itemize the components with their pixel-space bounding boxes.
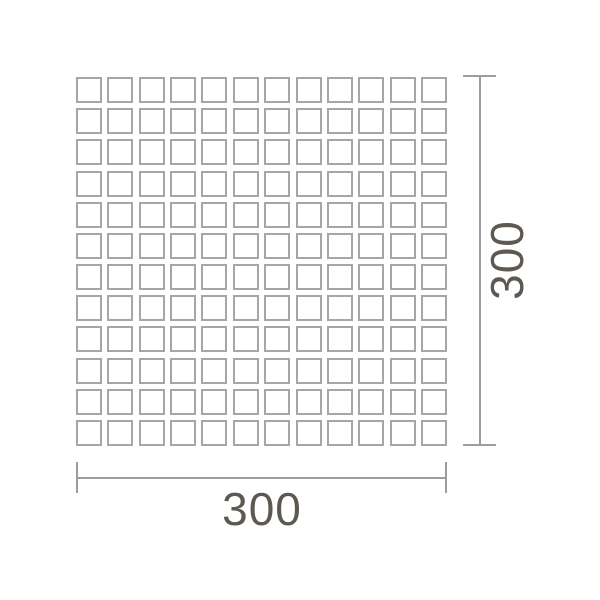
mosaic-tile bbox=[327, 77, 353, 103]
mosaic-tile bbox=[390, 108, 416, 134]
mosaic-tile bbox=[201, 77, 227, 103]
mosaic-tile bbox=[358, 358, 384, 384]
mosaic-tile bbox=[296, 171, 322, 197]
mosaic-tile bbox=[170, 264, 196, 290]
mosaic-tile bbox=[233, 139, 259, 165]
tile-sheet-drawing: 300 300 bbox=[0, 0, 600, 600]
mosaic-tile bbox=[201, 358, 227, 384]
mosaic-tile bbox=[76, 171, 102, 197]
mosaic-tile bbox=[390, 171, 416, 197]
mosaic-tile bbox=[107, 358, 133, 384]
mosaic-tile bbox=[264, 77, 290, 103]
height-dimension-tick-top bbox=[463, 75, 496, 77]
height-dimension-label: 300 bbox=[482, 200, 532, 320]
mosaic-tile bbox=[264, 171, 290, 197]
mosaic-tile bbox=[76, 358, 102, 384]
mosaic-tile bbox=[139, 233, 165, 259]
mosaic-tile bbox=[76, 77, 102, 103]
mosaic-tile bbox=[233, 264, 259, 290]
mosaic-tile bbox=[264, 358, 290, 384]
mosaic-tile bbox=[107, 326, 133, 352]
mosaic-tile-grid bbox=[76, 77, 447, 446]
mosaic-tile bbox=[421, 358, 447, 384]
mosaic-tile bbox=[390, 139, 416, 165]
mosaic-tile bbox=[233, 108, 259, 134]
mosaic-tile bbox=[107, 108, 133, 134]
mosaic-tile bbox=[390, 389, 416, 415]
mosaic-tile bbox=[327, 108, 353, 134]
mosaic-tile bbox=[107, 77, 133, 103]
mosaic-tile bbox=[264, 389, 290, 415]
mosaic-tile bbox=[107, 139, 133, 165]
mosaic-tile bbox=[358, 233, 384, 259]
mosaic-tile bbox=[201, 202, 227, 228]
mosaic-tile bbox=[296, 108, 322, 134]
mosaic-tile bbox=[170, 77, 196, 103]
mosaic-tile bbox=[327, 358, 353, 384]
mosaic-tile bbox=[327, 202, 353, 228]
mosaic-tile bbox=[170, 139, 196, 165]
mosaic-tile bbox=[76, 233, 102, 259]
mosaic-tile bbox=[170, 420, 196, 446]
mosaic-tile bbox=[358, 108, 384, 134]
mosaic-tile bbox=[327, 326, 353, 352]
mosaic-tile bbox=[264, 326, 290, 352]
mosaic-tile bbox=[296, 233, 322, 259]
mosaic-tile bbox=[107, 233, 133, 259]
mosaic-tile bbox=[107, 420, 133, 446]
mosaic-tile bbox=[201, 108, 227, 134]
mosaic-tile bbox=[107, 295, 133, 321]
mosaic-tile bbox=[233, 326, 259, 352]
mosaic-tile bbox=[390, 295, 416, 321]
mosaic-tile bbox=[139, 171, 165, 197]
mosaic-tile bbox=[421, 389, 447, 415]
mosaic-tile bbox=[296, 139, 322, 165]
mosaic-tile bbox=[233, 171, 259, 197]
mosaic-tile bbox=[76, 389, 102, 415]
mosaic-tile bbox=[264, 295, 290, 321]
mosaic-tile bbox=[390, 358, 416, 384]
mosaic-tile bbox=[421, 77, 447, 103]
mosaic-tile bbox=[358, 389, 384, 415]
mosaic-tile bbox=[233, 202, 259, 228]
mosaic-tile bbox=[327, 139, 353, 165]
mosaic-tile bbox=[233, 77, 259, 103]
mosaic-tile bbox=[201, 389, 227, 415]
mosaic-tile bbox=[201, 233, 227, 259]
mosaic-tile bbox=[201, 295, 227, 321]
mosaic-tile bbox=[107, 171, 133, 197]
mosaic-tile bbox=[358, 326, 384, 352]
mosaic-tile bbox=[201, 264, 227, 290]
mosaic-tile bbox=[233, 233, 259, 259]
mosaic-tile bbox=[327, 264, 353, 290]
mosaic-tile bbox=[264, 420, 290, 446]
mosaic-tile bbox=[139, 358, 165, 384]
mosaic-tile bbox=[233, 420, 259, 446]
mosaic-tile bbox=[421, 233, 447, 259]
mosaic-tile bbox=[264, 233, 290, 259]
mosaic-tile bbox=[170, 108, 196, 134]
mosaic-tile bbox=[296, 389, 322, 415]
mosaic-tile bbox=[296, 295, 322, 321]
mosaic-tile bbox=[264, 202, 290, 228]
width-dimension-line bbox=[77, 477, 447, 479]
mosaic-tile bbox=[170, 202, 196, 228]
mosaic-tile bbox=[327, 171, 353, 197]
mosaic-tile bbox=[327, 233, 353, 259]
mosaic-tile bbox=[358, 202, 384, 228]
mosaic-tile bbox=[170, 233, 196, 259]
mosaic-tile bbox=[107, 202, 133, 228]
mosaic-tile bbox=[358, 295, 384, 321]
mosaic-tile bbox=[264, 108, 290, 134]
mosaic-tile bbox=[170, 389, 196, 415]
mosaic-tile bbox=[421, 202, 447, 228]
mosaic-tile bbox=[390, 264, 416, 290]
mosaic-tile bbox=[76, 202, 102, 228]
mosaic-tile bbox=[107, 264, 133, 290]
mosaic-tile bbox=[233, 389, 259, 415]
mosaic-tile bbox=[327, 389, 353, 415]
mosaic-tile bbox=[170, 295, 196, 321]
mosaic-tile bbox=[390, 420, 416, 446]
mosaic-tile bbox=[390, 326, 416, 352]
mosaic-tile bbox=[264, 139, 290, 165]
mosaic-tile bbox=[201, 326, 227, 352]
mosaic-tile bbox=[421, 171, 447, 197]
mosaic-tile bbox=[170, 326, 196, 352]
mosaic-tile bbox=[201, 420, 227, 446]
mosaic-tile bbox=[390, 233, 416, 259]
mosaic-tile bbox=[139, 202, 165, 228]
mosaic-tile bbox=[76, 420, 102, 446]
mosaic-tile bbox=[139, 326, 165, 352]
mosaic-tile bbox=[139, 420, 165, 446]
mosaic-tile bbox=[296, 264, 322, 290]
mosaic-tile bbox=[358, 139, 384, 165]
mosaic-tile bbox=[421, 108, 447, 134]
mosaic-tile bbox=[170, 171, 196, 197]
mosaic-tile bbox=[358, 420, 384, 446]
mosaic-tile bbox=[421, 326, 447, 352]
mosaic-tile bbox=[358, 264, 384, 290]
mosaic-tile bbox=[327, 295, 353, 321]
mosaic-tile bbox=[296, 420, 322, 446]
mosaic-tile bbox=[421, 264, 447, 290]
mosaic-tile bbox=[139, 264, 165, 290]
mosaic-tile bbox=[76, 295, 102, 321]
mosaic-tile bbox=[233, 295, 259, 321]
mosaic-tile bbox=[139, 295, 165, 321]
mosaic-tile bbox=[327, 420, 353, 446]
mosaic-tile bbox=[296, 202, 322, 228]
mosaic-tile bbox=[421, 420, 447, 446]
mosaic-tile bbox=[170, 358, 196, 384]
mosaic-tile bbox=[421, 139, 447, 165]
mosaic-tile bbox=[233, 358, 259, 384]
mosaic-tile bbox=[139, 108, 165, 134]
mosaic-tile bbox=[390, 77, 416, 103]
mosaic-tile bbox=[201, 139, 227, 165]
mosaic-tile bbox=[139, 389, 165, 415]
mosaic-tile bbox=[76, 139, 102, 165]
mosaic-tile bbox=[421, 295, 447, 321]
mosaic-tile bbox=[296, 326, 322, 352]
mosaic-tile bbox=[76, 326, 102, 352]
mosaic-tile bbox=[390, 202, 416, 228]
mosaic-tile bbox=[296, 77, 322, 103]
mosaic-tile bbox=[296, 358, 322, 384]
mosaic-tile bbox=[264, 264, 290, 290]
mosaic-tile bbox=[76, 108, 102, 134]
mosaic-tile bbox=[139, 77, 165, 103]
mosaic-tile bbox=[107, 389, 133, 415]
mosaic-tile bbox=[201, 171, 227, 197]
height-dimension-tick-bottom bbox=[463, 444, 496, 446]
mosaic-tile bbox=[139, 139, 165, 165]
mosaic-tile bbox=[358, 171, 384, 197]
width-dimension-label: 300 bbox=[77, 486, 447, 532]
mosaic-tile bbox=[76, 264, 102, 290]
mosaic-tile bbox=[358, 77, 384, 103]
